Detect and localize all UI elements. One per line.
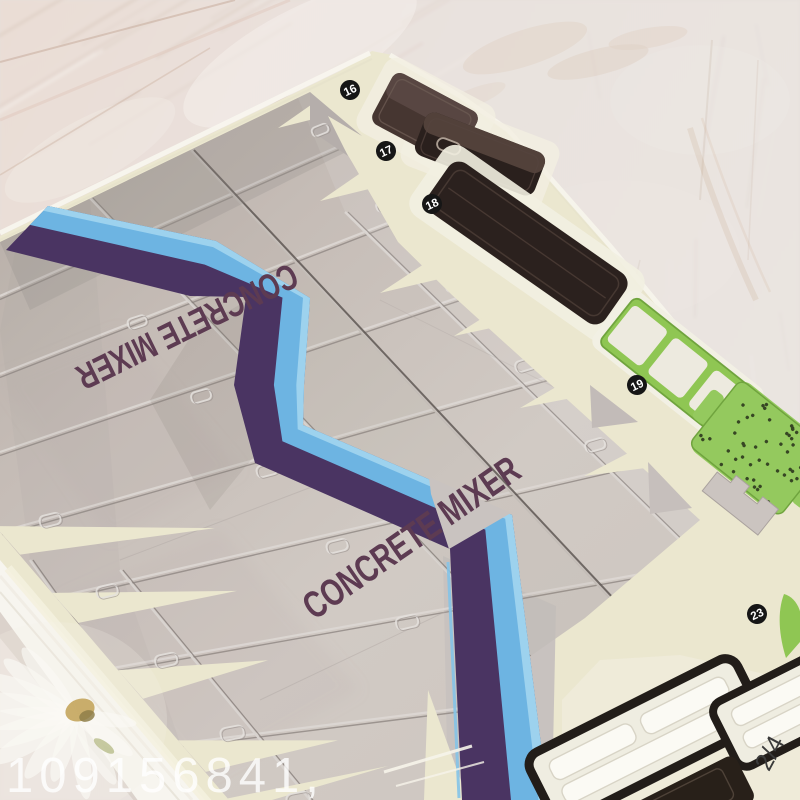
svg-text:109156841,: 109156841, (6, 749, 325, 800)
